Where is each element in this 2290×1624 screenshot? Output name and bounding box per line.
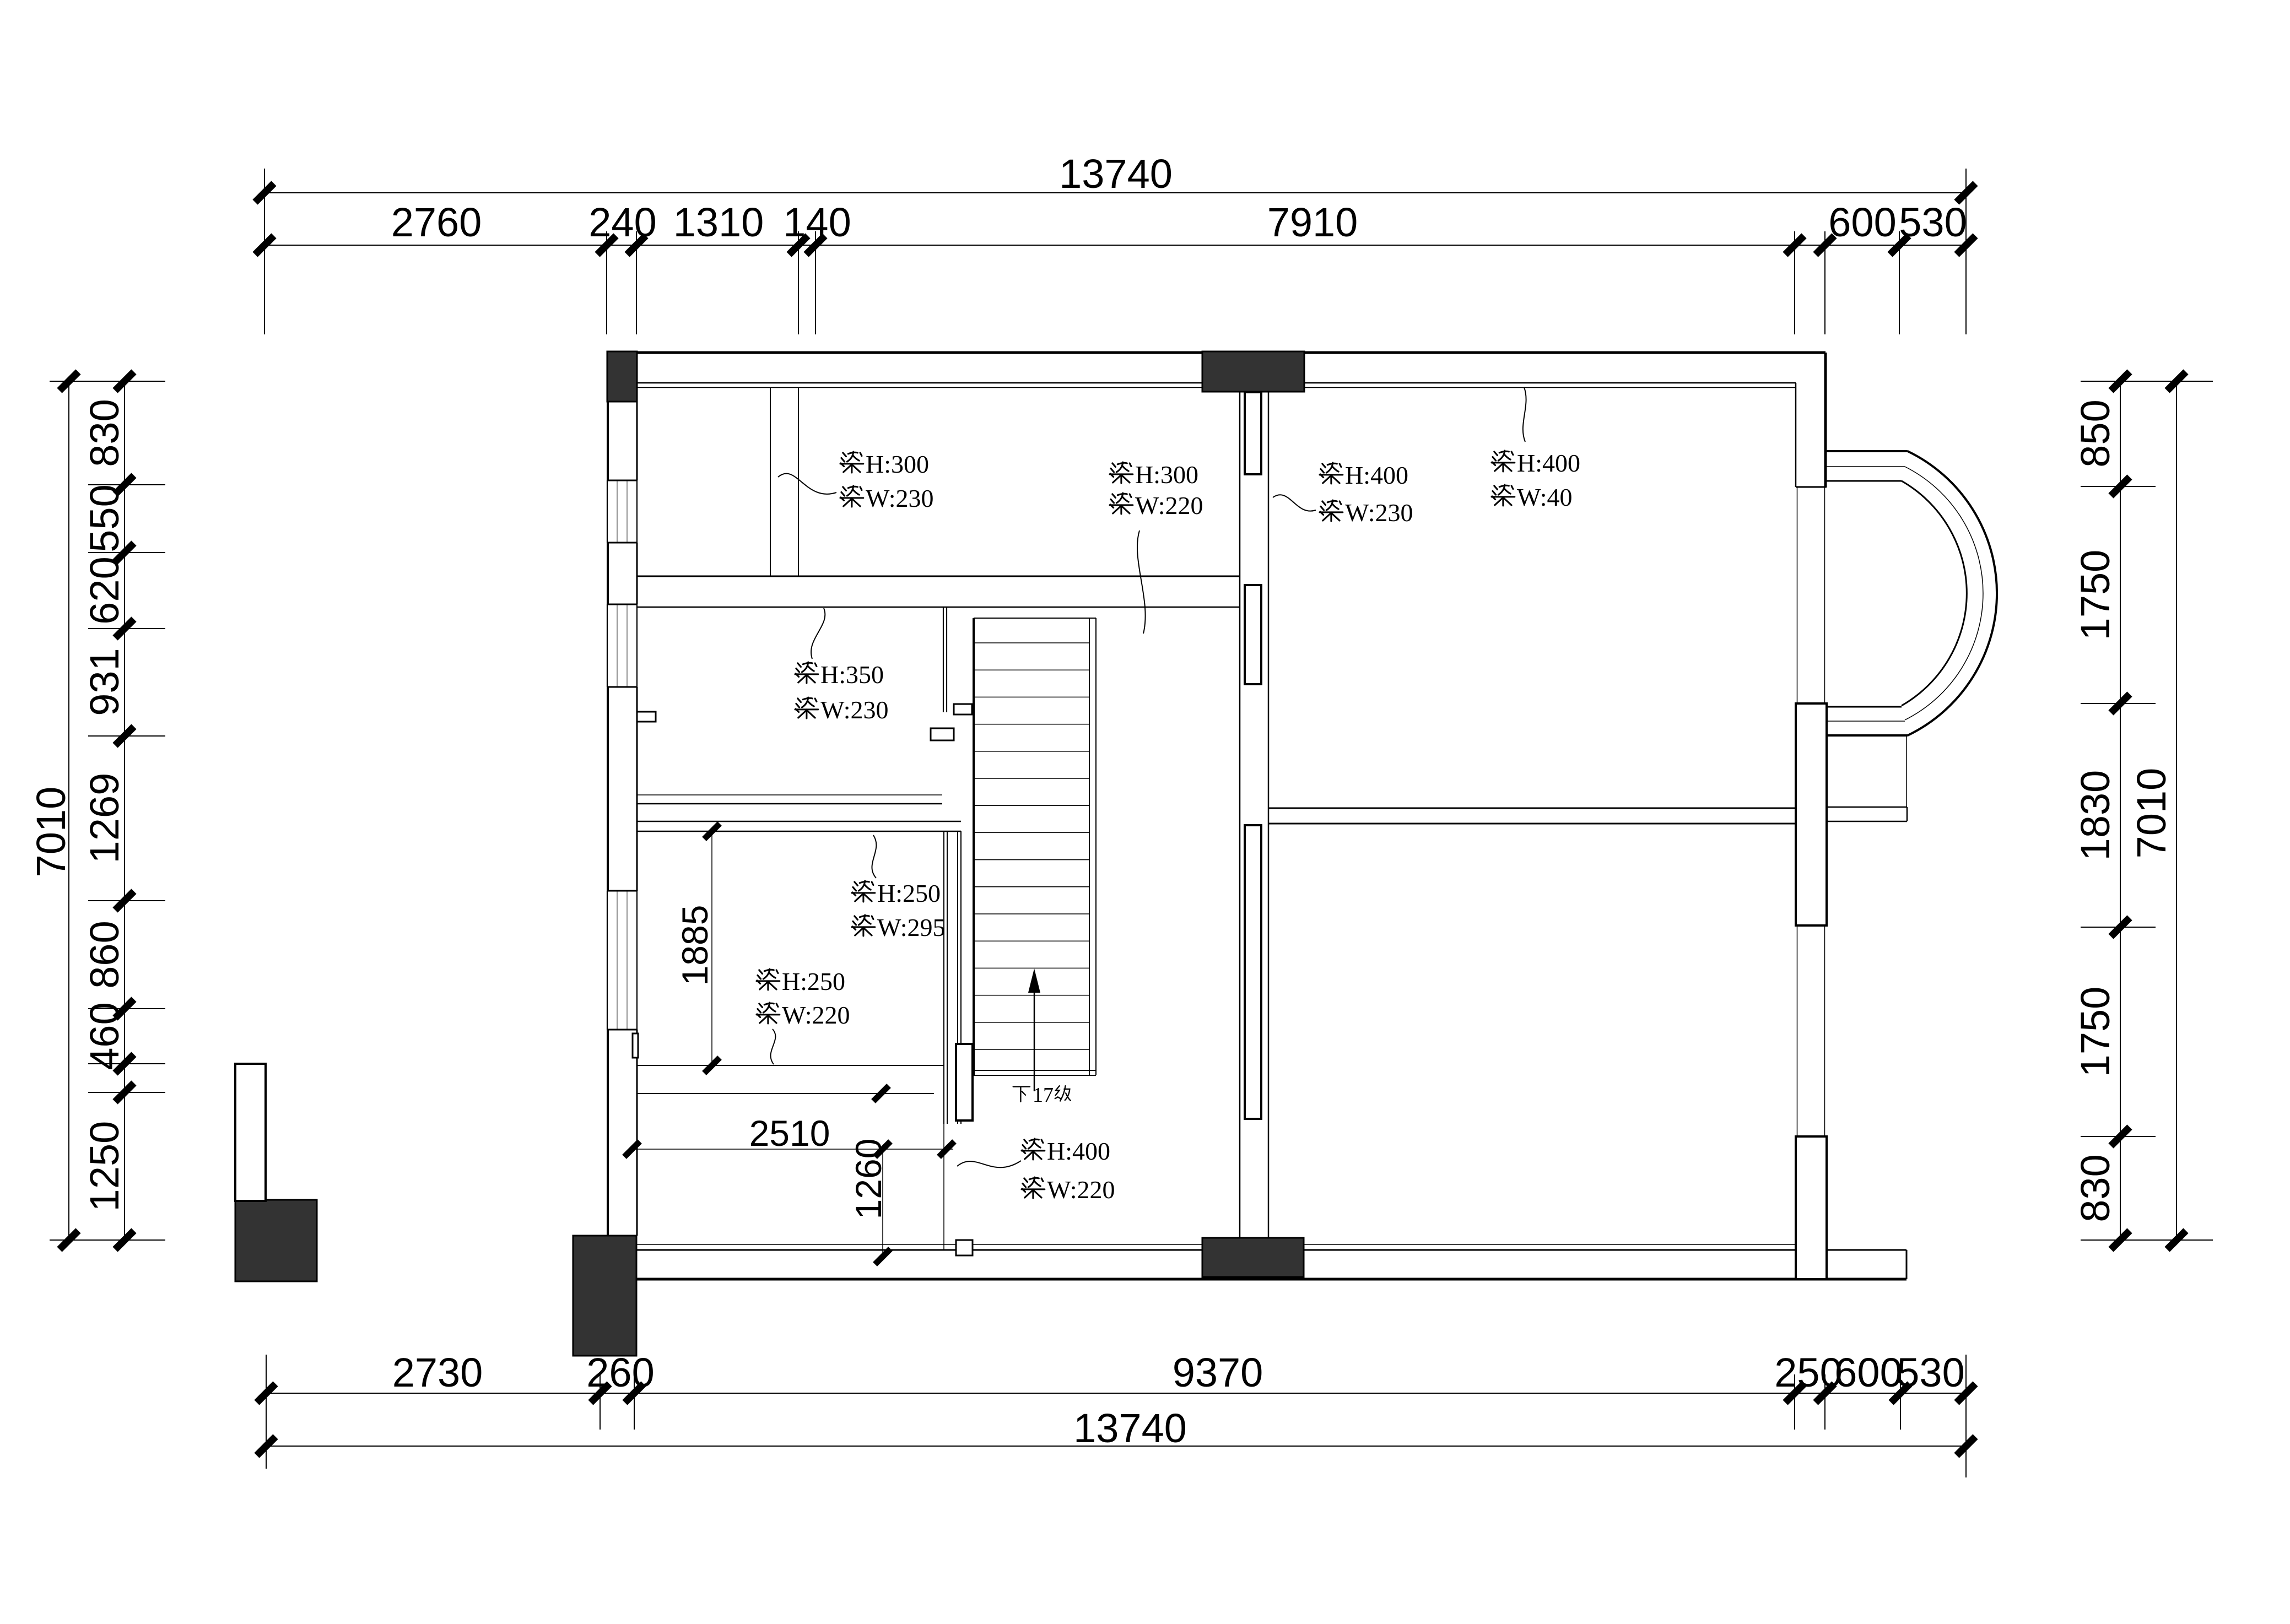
- svg-text:931: 931: [82, 648, 127, 716]
- svg-text:2730: 2730: [392, 1350, 483, 1395]
- svg-text:H:400: H:400: [1517, 449, 1580, 477]
- svg-text:1269: 1269: [82, 773, 127, 864]
- svg-text:830: 830: [2072, 1154, 2118, 1222]
- svg-text:17: 17: [1033, 1084, 1054, 1107]
- svg-text:13740: 13740: [1059, 151, 1173, 197]
- svg-text:600: 600: [1828, 199, 1896, 245]
- svg-text:860: 860: [82, 921, 127, 988]
- svg-text:13740: 13740: [1073, 1405, 1187, 1451]
- svg-text:H:250: H:250: [782, 967, 845, 995]
- svg-text:7010: 7010: [2129, 768, 2174, 859]
- svg-text:7010: 7010: [28, 787, 74, 878]
- svg-text:2760: 2760: [391, 199, 482, 245]
- svg-text:140: 140: [783, 199, 851, 245]
- svg-text:620: 620: [82, 556, 127, 624]
- svg-text:W:40: W:40: [1517, 483, 1573, 511]
- svg-text:H:250: H:250: [877, 879, 941, 907]
- svg-text:9370: 9370: [1173, 1350, 1263, 1395]
- svg-text:W:220: W:220: [1047, 1176, 1115, 1204]
- svg-text:460: 460: [82, 1002, 127, 1070]
- svg-text:250: 250: [1774, 1350, 1842, 1395]
- svg-text:1750: 1750: [2072, 987, 2118, 1078]
- svg-text:W:230: W:230: [866, 484, 934, 512]
- svg-text:H:400: H:400: [1345, 461, 1408, 489]
- svg-text:530: 530: [1897, 1350, 1964, 1395]
- svg-text:1885: 1885: [674, 905, 715, 986]
- svg-text:H:300: H:300: [1135, 461, 1198, 489]
- svg-text:W:220: W:220: [1135, 491, 1203, 519]
- svg-text:W:220: W:220: [782, 1001, 850, 1029]
- svg-text:H:350: H:350: [820, 661, 884, 689]
- svg-text:7910: 7910: [1267, 199, 1358, 245]
- svg-text:W:230: W:230: [1345, 499, 1413, 527]
- svg-text:1260: 1260: [848, 1139, 889, 1220]
- svg-text:600: 600: [1834, 1350, 1902, 1395]
- svg-text:W:295: W:295: [877, 913, 946, 941]
- svg-text:850: 850: [2072, 399, 2118, 467]
- svg-text:2510: 2510: [749, 1113, 830, 1154]
- svg-text:1310: 1310: [673, 199, 764, 245]
- svg-text:530: 530: [1899, 199, 1967, 245]
- svg-text:830: 830: [82, 399, 127, 467]
- svg-text:W:230: W:230: [820, 696, 889, 724]
- svg-text:H:400: H:400: [1047, 1137, 1110, 1165]
- svg-text:240: 240: [588, 199, 656, 245]
- svg-text:H:300: H:300: [866, 450, 929, 478]
- svg-text:1250: 1250: [82, 1121, 127, 1212]
- svg-text:1830: 1830: [2072, 770, 2118, 861]
- svg-text:550: 550: [82, 484, 127, 552]
- svg-text:1750: 1750: [2072, 550, 2118, 641]
